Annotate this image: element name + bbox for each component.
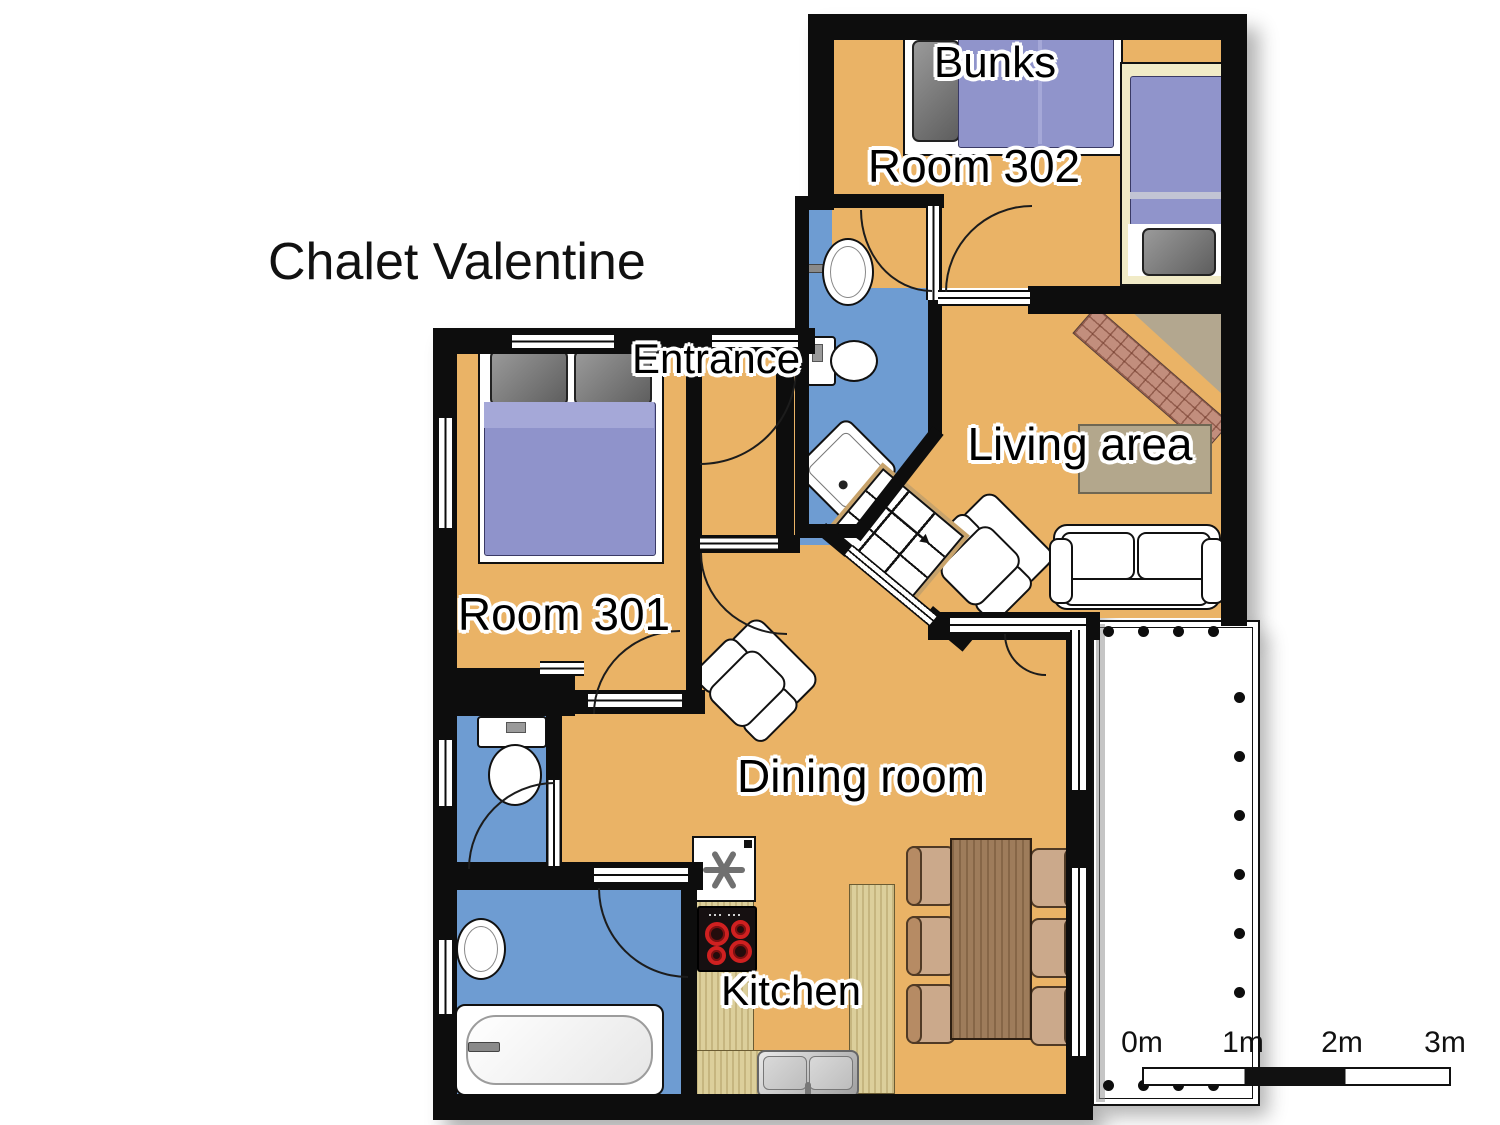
railing-post xyxy=(1234,751,1245,762)
balcony-door xyxy=(1070,630,1088,790)
wall xyxy=(808,14,834,210)
room-label-kitchen: Kitchen xyxy=(721,967,861,1015)
dining-table xyxy=(950,838,1032,1040)
dining-chair xyxy=(906,916,956,976)
wall xyxy=(808,14,1247,40)
dining-chair xyxy=(906,984,956,1044)
railing-post xyxy=(1234,987,1245,998)
room-label-living: Living area xyxy=(967,417,1192,471)
window xyxy=(950,616,1002,634)
wall xyxy=(1221,14,1247,626)
door-frame xyxy=(700,537,778,550)
scale-label: 0m xyxy=(1121,1026,1163,1060)
floor-plan: 0m 1m 2m 3m Chalet Valentine Bunks Room … xyxy=(0,0,1500,1125)
window xyxy=(437,740,454,806)
balcony-window xyxy=(1070,868,1088,1056)
railing-post xyxy=(1138,626,1149,637)
scale-label: 2m xyxy=(1321,1026,1363,1060)
door-frame xyxy=(540,661,584,676)
scale-bar xyxy=(1142,1067,1451,1086)
room-label-bunks: Bunks xyxy=(934,38,1056,88)
scale-label: 3m xyxy=(1424,1026,1466,1060)
door-frame xyxy=(938,290,1030,306)
railing-post xyxy=(1103,1080,1114,1091)
page-title: Chalet Valentine xyxy=(268,232,646,292)
room-label-entrance: Entrance xyxy=(632,335,800,383)
railing-post xyxy=(1234,810,1245,821)
room-label-dining: Dining room xyxy=(737,749,985,803)
dining-chair xyxy=(906,846,956,906)
scale-label: 1m xyxy=(1222,1026,1264,1060)
wall xyxy=(433,1094,1093,1120)
railing-post xyxy=(1234,692,1245,703)
bathtub-tap xyxy=(468,1042,500,1052)
railing-post xyxy=(1234,869,1245,880)
railing-post xyxy=(1208,626,1219,637)
door-frame xyxy=(594,866,688,884)
cooktop-icon xyxy=(697,906,757,972)
window xyxy=(437,940,454,1014)
kitchen-sink xyxy=(757,1050,859,1098)
railing-post xyxy=(1103,626,1114,637)
railing-post xyxy=(1234,928,1245,939)
room-label-301: Room 301 xyxy=(458,587,670,641)
window xyxy=(437,418,454,528)
sofa xyxy=(1053,524,1221,610)
wall xyxy=(808,194,944,208)
room-label-302: Room 302 xyxy=(868,139,1080,193)
window xyxy=(512,333,614,350)
wall xyxy=(1028,286,1245,314)
door-frame xyxy=(1002,616,1046,634)
railing-post xyxy=(1173,626,1184,637)
balcony-shade xyxy=(1096,624,1105,1102)
